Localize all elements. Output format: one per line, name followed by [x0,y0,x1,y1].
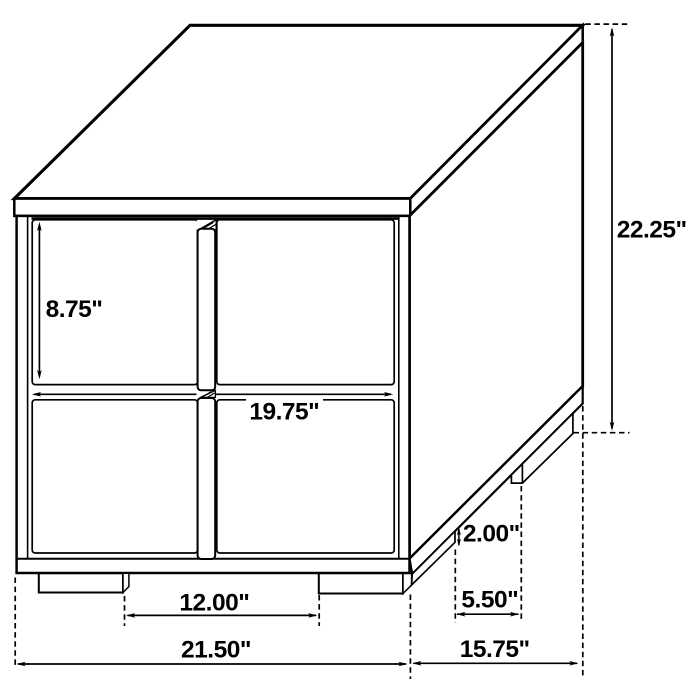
svg-text:21.50": 21.50" [181,636,251,663]
svg-text:15.75": 15.75" [460,636,530,663]
svg-text:8.75": 8.75" [46,296,103,323]
svg-text:5.50": 5.50" [461,587,518,614]
svg-text:19.75": 19.75" [249,398,319,425]
svg-text:12.00": 12.00" [179,590,249,617]
svg-text:2.00": 2.00" [463,521,520,548]
svg-text:22.25": 22.25" [617,216,687,243]
